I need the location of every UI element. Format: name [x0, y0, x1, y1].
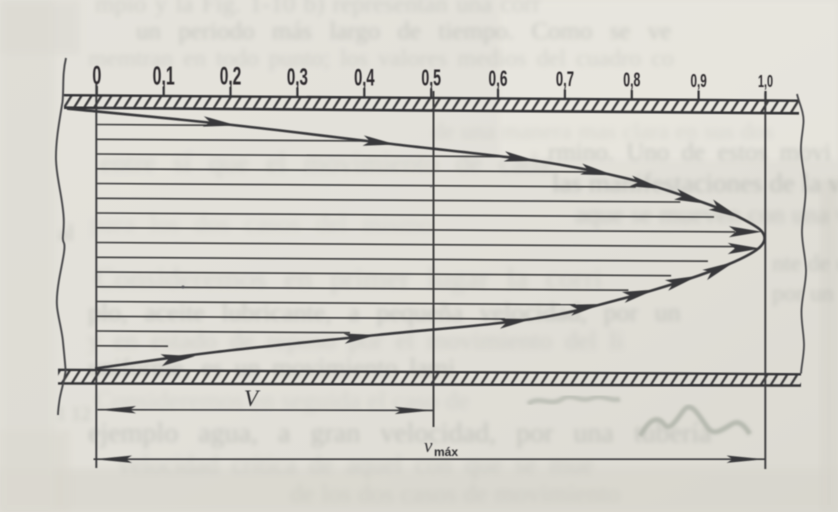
svg-text:mpio y la Fig. 1-10 b) represe: mpio y la Fig. 1-10 b) representan una c…: [95, 0, 541, 18]
svg-text:0,6: 0,6: [489, 65, 508, 90]
svg-text:ejemplo agua, a gran velocidad: ejemplo agua, a gran velocidad, por una …: [88, 418, 712, 449]
svg-text:0,4: 0,4: [354, 65, 374, 91]
svg-text:0,7: 0,7: [556, 67, 574, 91]
svg-text:0,5: 0,5: [421, 66, 441, 91]
svg-text:0,9: 0,9: [691, 71, 707, 91]
svg-text:1 12: 1 12: [56, 403, 91, 425]
svg-text:máx: máx: [434, 445, 458, 459]
svg-text:0,2: 0,2: [220, 63, 242, 91]
svg-text:rmino. Uno de estos movi: rmino. Uno de estos movi: [548, 139, 831, 166]
svg-text:velocidad crítica de aquel con: velocidad crítica de aquel con que se mu…: [118, 450, 594, 479]
svg-text:0,3: 0,3: [287, 65, 308, 91]
svg-text:un periodo más largo de tiempo: un periodo más largo de tiempo. Como se …: [136, 18, 671, 45]
svg-text:0,1: 0,1: [153, 61, 175, 90]
svg-text:entre sí que el movimiento de: entre sí que el movimiento de cada: [100, 148, 551, 179]
svg-text:memtran en todo punto; los val: memtran en todo punto; los valores medio…: [88, 46, 674, 72]
svg-text:al: al: [58, 220, 74, 245]
svg-text:v: v: [424, 436, 433, 457]
svg-text:de los dos casos de movimiento: de los dos casos de movimiento: [290, 479, 620, 508]
svg-text:0,8: 0,8: [623, 69, 640, 92]
svg-text:1,0: 1,0: [758, 73, 773, 92]
